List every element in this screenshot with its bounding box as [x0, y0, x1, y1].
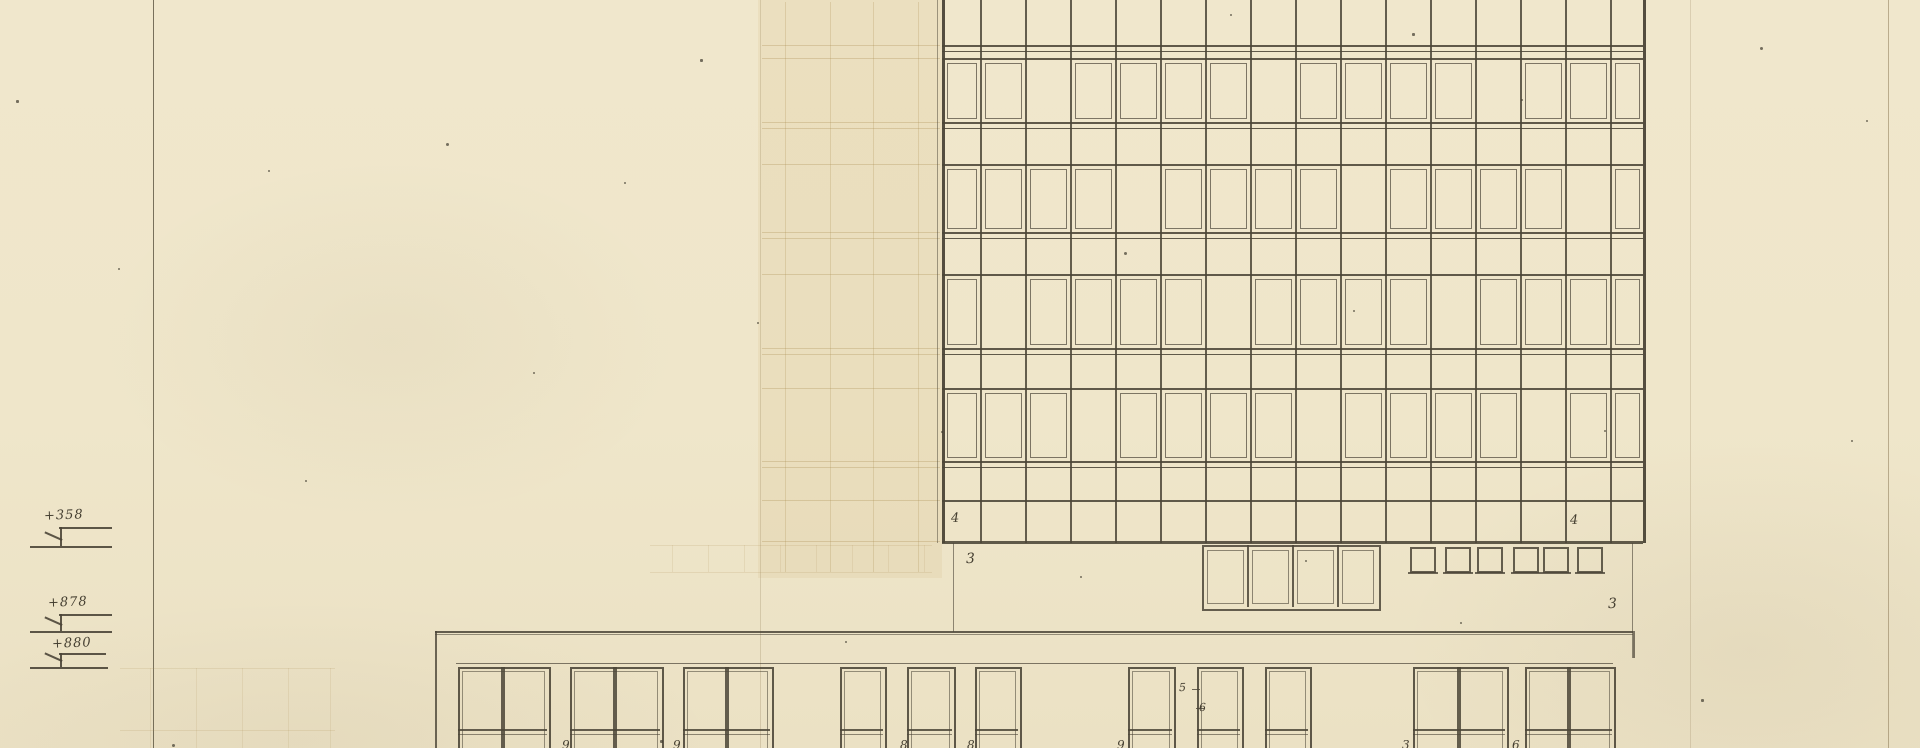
lower-window-transom-2 — [1197, 734, 1240, 735]
ghost-grid-line — [762, 388, 940, 389]
basement-window — [1445, 547, 1471, 573]
basement-window-sill — [1575, 572, 1605, 574]
window-sash-frame — [947, 279, 977, 345]
lower-window-transom-2 — [907, 734, 952, 735]
paper-speck — [700, 59, 703, 62]
paper-speck — [845, 641, 847, 643]
ref-number-6: 6 — [1199, 701, 1207, 714]
paper-speck — [660, 740, 663, 743]
basement-window-sill — [1475, 572, 1505, 574]
facade-floor-line — [942, 232, 1643, 234]
window-sash-frame — [1570, 279, 1607, 345]
elevation-marker-bar — [59, 527, 112, 529]
basement-window-sill — [1443, 572, 1473, 574]
paper-speck — [16, 100, 19, 103]
paper-speck — [1124, 252, 1127, 255]
elevation-marker-baseline — [30, 667, 108, 669]
basement-window — [1410, 547, 1436, 573]
elevation-marker-label: +880 — [52, 635, 92, 651]
ghost-grid-line — [120, 668, 335, 669]
paper-speck — [305, 480, 307, 482]
ref-number-4-right: 4 — [1570, 513, 1580, 528]
lower-window-transom-2 — [975, 734, 1018, 735]
ref-number-3-right: 3 — [1608, 596, 1618, 612]
ghost-grid-line — [762, 541, 940, 542]
lower-window-transom-2 — [570, 734, 660, 735]
lower-window-transom — [840, 729, 883, 731]
blueprint-sheet: +358 +878 +880 4 4 3 3 5 6 9988936 — [0, 0, 1920, 748]
elevation-marker-label: +878 — [48, 594, 88, 610]
window-sash-frame — [985, 393, 1022, 458]
facade-floor-line — [942, 128, 1643, 129]
lower-window-transom — [1128, 729, 1172, 731]
ghost-grid-line — [242, 668, 243, 748]
bottom-edge-digit: 8 — [967, 738, 975, 748]
window-sash-frame — [1435, 393, 1472, 458]
facade-floor-line — [942, 467, 1643, 468]
basement-window — [1513, 547, 1539, 573]
lower-window-mullion — [725, 667, 729, 748]
ghost-grid-line — [762, 122, 940, 123]
paper-speck — [1866, 120, 1868, 122]
bottom-edge-digit: 3 — [1402, 738, 1410, 748]
window-sash-frame — [1345, 63, 1382, 119]
paper-speck — [1460, 622, 1462, 624]
ghost-grid-line — [744, 545, 745, 572]
paper-speck — [941, 431, 943, 433]
ghost-grid-line — [762, 238, 940, 239]
window-sash-frame — [1480, 279, 1517, 345]
lower-window-transom — [1265, 729, 1308, 731]
facade-floor-line — [942, 164, 1643, 166]
paper-speck — [624, 182, 626, 184]
lower-window-transom — [975, 729, 1018, 731]
facade-floor-line — [942, 45, 1643, 47]
window-sash-frame — [1075, 279, 1112, 345]
elevation-marker-baseline — [30, 546, 112, 548]
lower-window-inner-frame — [1269, 671, 1306, 748]
window-sash-frame — [1615, 169, 1640, 229]
window-sash-frame — [1390, 63, 1427, 119]
lower-window-transom — [1197, 729, 1240, 731]
entrance-pane-frame — [1297, 550, 1334, 604]
lower-window-inner-frame — [979, 671, 1016, 748]
ref-number-5: 5 — [1179, 681, 1187, 694]
paper-speck — [1521, 99, 1523, 101]
lower-window-transom — [458, 729, 547, 731]
lower-window-mullion — [1457, 667, 1461, 748]
ref-number-4-left: 4 — [951, 511, 961, 526]
bottom-edge-digit: 9 — [1117, 738, 1125, 748]
paper-speck — [1851, 440, 1853, 442]
window-sash-frame — [1525, 63, 1562, 119]
parapet-line-2 — [435, 634, 1633, 635]
entrance-pane-frame — [1207, 550, 1244, 604]
window-sash-frame — [1615, 393, 1640, 458]
ghost-grid-line — [762, 58, 940, 59]
facade-floor-line — [942, 388, 1643, 390]
facade-drop-line — [953, 543, 954, 632]
bottom-edge-digit: 6 — [1512, 738, 1520, 748]
basement-window — [1577, 547, 1603, 573]
paper-speck — [446, 143, 449, 146]
lower-window-inner-frame — [844, 671, 881, 748]
window-sash-frame — [1210, 63, 1247, 119]
ghost-grid-line — [924, 545, 925, 572]
ghost-grid-line — [762, 461, 940, 462]
lower-window-inner-frame — [1132, 671, 1170, 748]
window-sash-frame — [1255, 169, 1292, 229]
paper-speck — [1412, 33, 1415, 36]
ghost-grid-line — [830, 2, 831, 572]
window-sash-frame — [1030, 393, 1067, 458]
window-sash-frame — [1390, 169, 1427, 229]
ghost-grid-line — [708, 545, 709, 572]
facade-mullion — [1643, 0, 1646, 543]
ghost-grid-line — [196, 668, 197, 748]
window-sash-frame — [1210, 169, 1247, 229]
elevation-marker-bar — [59, 614, 112, 616]
lower-window-transom-2 — [1413, 734, 1505, 735]
facade-floor-line — [942, 461, 1643, 463]
paper-speck — [1230, 14, 1232, 16]
paper-speck — [757, 322, 759, 324]
elevation-marker-bar — [59, 653, 106, 655]
ghost-grid-line — [762, 45, 940, 46]
window-sash-frame — [947, 169, 977, 229]
basement-window — [1477, 547, 1503, 573]
ghost-grid-line — [888, 545, 889, 572]
fold-line — [1690, 0, 1691, 748]
basement-window-sill — [1408, 572, 1438, 574]
lower-window-inner-frame — [911, 671, 950, 748]
lower-window-transom-2 — [683, 734, 770, 735]
ghost-grid-line — [762, 232, 940, 233]
lower-window-transom — [907, 729, 952, 731]
window-sash-frame — [1255, 393, 1292, 458]
window-sash-frame — [1030, 279, 1067, 345]
ghost-grid-line — [150, 668, 151, 748]
window-sash-frame — [1345, 393, 1382, 458]
lower-window-mullion — [501, 667, 505, 748]
paper-speck — [268, 170, 270, 172]
entrance-mullion — [1292, 545, 1294, 607]
window-sash-frame — [1570, 63, 1607, 119]
lower-window-transom — [683, 729, 770, 731]
lower-left-wall — [435, 631, 437, 748]
ghost-grid-line — [762, 348, 940, 349]
lower-window-transom-2 — [458, 734, 547, 735]
facade-floor-line — [942, 122, 1643, 124]
entrance-pane-frame — [1252, 550, 1289, 604]
window-sash-frame — [1435, 63, 1472, 119]
lower-window-transom — [1525, 729, 1612, 731]
ghost-grid-line — [852, 545, 853, 572]
window-sash-frame — [1120, 393, 1157, 458]
window-sash-frame — [1390, 393, 1427, 458]
lower-window-transom-2 — [1128, 734, 1172, 735]
window-sash-frame — [1210, 393, 1247, 458]
ghost-grid-line — [816, 545, 817, 572]
facade-floor-line — [942, 51, 1643, 52]
ghost-grid-line — [762, 354, 940, 355]
entrance-mullion — [1337, 545, 1339, 607]
paper-speck — [1701, 699, 1704, 702]
ghost-grid-line — [650, 545, 932, 546]
paper-speck — [1305, 560, 1307, 562]
window-sash-frame — [1030, 169, 1067, 229]
window-sash-frame — [1525, 169, 1562, 229]
window-sash-frame — [1120, 63, 1157, 119]
ghost-grid-line — [120, 730, 335, 731]
fold-line — [1888, 0, 1889, 748]
lower-window-mullion — [1567, 667, 1571, 748]
basement-window-sill — [1541, 572, 1571, 574]
window-sash-frame — [1165, 393, 1202, 458]
bottom-edge-digit: 9 — [673, 738, 681, 748]
paper-speck — [533, 372, 535, 374]
lower-window-transom-2 — [1265, 734, 1308, 735]
bottom-edge-digit: 8 — [900, 738, 908, 748]
window-sash-frame — [1075, 63, 1112, 119]
window-sash-frame — [1120, 279, 1157, 345]
lower-window-transom-2 — [840, 734, 883, 735]
facade-floor-line — [942, 348, 1643, 350]
parapet-line — [435, 631, 1633, 633]
ghost-grid-line — [762, 467, 940, 468]
window-sash-frame — [1480, 393, 1517, 458]
lower-window-transom-2 — [1525, 734, 1612, 735]
window-sash-frame — [947, 63, 977, 119]
facade-floor-line — [942, 58, 1643, 60]
ghost-grid-line — [873, 2, 874, 572]
facade-floor-line — [942, 354, 1643, 355]
window-sash-frame — [1570, 393, 1607, 458]
window-sash-frame — [1525, 279, 1562, 345]
ghost-grid-line — [762, 164, 940, 165]
entrance-mullion — [1247, 545, 1249, 607]
window-sash-frame — [1300, 63, 1337, 119]
ghost-grid-line — [762, 500, 940, 501]
paper-speck — [1080, 576, 1082, 578]
facade-floor-line — [942, 238, 1643, 239]
window-sash-frame — [1165, 63, 1202, 119]
window-sash-frame — [1435, 169, 1472, 229]
ghost-grid-line — [672, 545, 673, 572]
lintel-line — [456, 663, 1613, 664]
facade-edge-line — [937, 0, 938, 543]
elevation-marker-label: +358 — [44, 507, 84, 523]
window-sash-frame — [1615, 63, 1640, 119]
entrance-pane-frame — [1342, 550, 1374, 604]
window-sash-frame — [985, 63, 1022, 119]
paper-speck — [172, 744, 175, 747]
lower-window-transom — [570, 729, 660, 731]
leader-dash — [1192, 689, 1200, 690]
window-sash-frame — [1075, 169, 1112, 229]
ghost-grid-line — [780, 545, 781, 572]
fold-line — [153, 0, 154, 748]
ghost-grid-line — [918, 2, 919, 572]
elevation-marker-baseline — [30, 631, 112, 633]
paper-speck — [1760, 47, 1763, 50]
window-sash-frame — [1390, 279, 1427, 345]
facade-floor-line — [942, 274, 1643, 276]
lower-window-transom — [1413, 729, 1505, 731]
bottom-edge-digit: 9 — [562, 738, 570, 748]
ghost-grid-line — [785, 2, 786, 572]
ghost-grid-line — [762, 128, 940, 129]
ghost-grid-line — [762, 274, 940, 275]
window-sash-frame — [1345, 279, 1382, 345]
window-sash-frame — [1300, 279, 1337, 345]
window-sash-frame — [1300, 169, 1337, 229]
facade-floor-line — [942, 541, 1643, 544]
window-sash-frame — [1165, 169, 1202, 229]
ghost-grid-line — [330, 668, 331, 748]
ghost-grid-line — [650, 572, 932, 573]
paper-speck — [118, 268, 120, 270]
window-sash-frame — [1255, 279, 1292, 345]
window-sash-frame — [1615, 279, 1640, 345]
ghost-grid-line — [288, 668, 289, 748]
lower-window-mullion — [613, 667, 617, 748]
window-sash-frame — [947, 393, 977, 458]
ref-number-3-left: 3 — [966, 551, 976, 567]
lower-right-wall — [1633, 631, 1635, 658]
paper-speck — [1604, 430, 1606, 432]
paper-speck — [1353, 310, 1355, 312]
basement-window-sill — [1511, 572, 1541, 574]
basement-window — [1543, 547, 1569, 573]
elevation-marker-stem — [60, 527, 62, 546]
window-sash-frame — [1480, 169, 1517, 229]
window-sash-frame — [985, 169, 1022, 229]
window-sash-frame — [1165, 279, 1202, 345]
facade-floor-line — [942, 500, 1643, 502]
